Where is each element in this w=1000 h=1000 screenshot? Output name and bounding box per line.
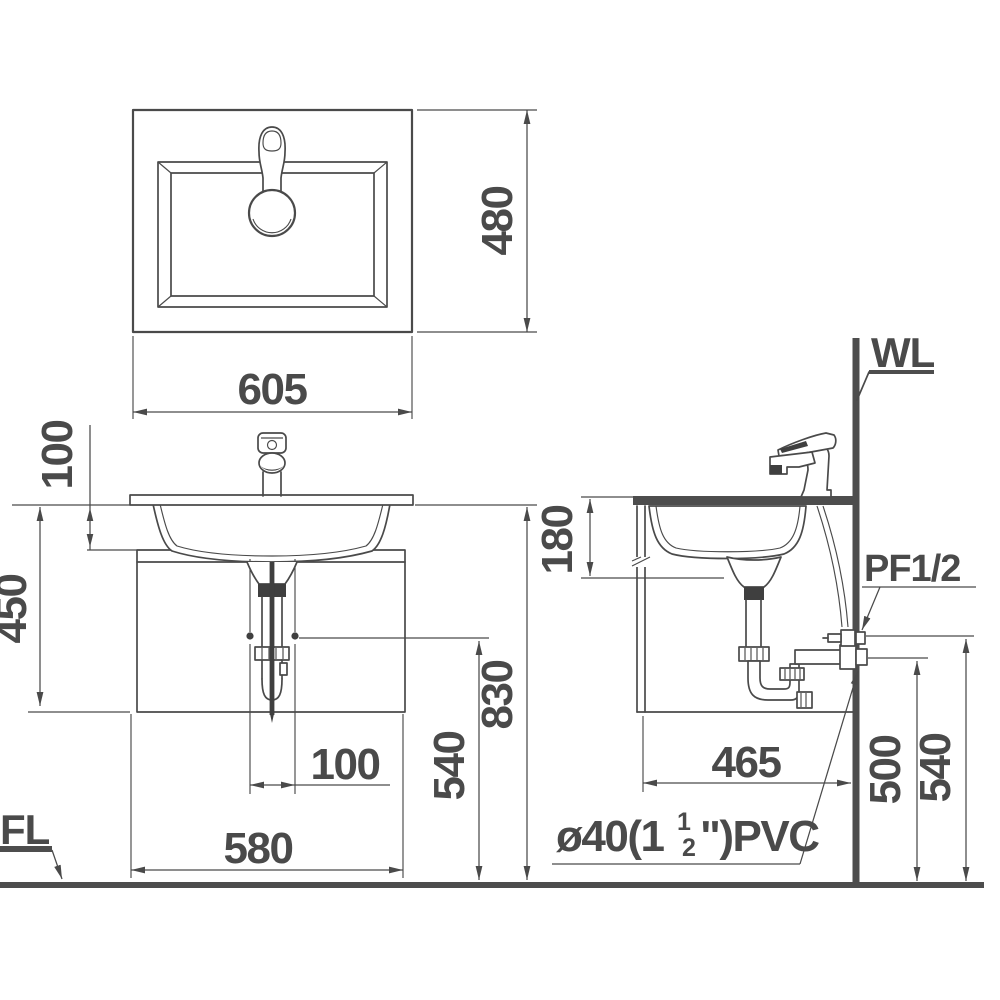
supply-hose xyxy=(817,506,848,627)
wall-supply-valve xyxy=(823,630,865,646)
wall-label-group: WL xyxy=(857,329,935,400)
drain-pipe-label-frac-denominator: 2 xyxy=(682,834,696,862)
dim-cabinet-width: 580 xyxy=(131,714,403,878)
dim-top-depth-label: 480 xyxy=(473,187,522,256)
dim-basin-depth-label: 180 xyxy=(533,506,582,575)
dim-outlet-height-label: 500 xyxy=(861,736,910,805)
dim-counter-height: 830 xyxy=(415,505,537,880)
dim-valve-height-front: 540 xyxy=(425,641,479,880)
wall-label: WL xyxy=(871,329,935,376)
dim-top-width-label: 605 xyxy=(238,365,308,414)
dim-cabinet-depth-label: 465 xyxy=(712,738,782,787)
side-drain-trap xyxy=(739,587,867,708)
drain-pipe-label-suffix: ")PVC xyxy=(700,812,819,861)
supply-fitting-label-group: PF1/2 xyxy=(862,548,976,630)
dim-cabinet-height-label: 450 xyxy=(0,575,36,644)
supply-fitting-label: PF1/2 xyxy=(864,548,960,590)
front-basin xyxy=(153,504,390,562)
floor-label-group: FL xyxy=(0,806,62,879)
drain-pipe-label-prefix: ø40(1 xyxy=(556,812,664,861)
front-counter-slab xyxy=(130,495,413,505)
dim-faucet-offset: 100 xyxy=(12,421,140,550)
drain-pipe-label-frac-numerator: 1 xyxy=(677,808,691,836)
top-view-faucet xyxy=(249,127,295,236)
top-view: 605 480 xyxy=(133,110,537,419)
vanity-installation-drawing: 605 480 xyxy=(0,0,1000,1000)
dim-faucet-offset-label: 100 xyxy=(33,421,82,490)
front-popup-rod xyxy=(270,562,275,715)
side-faucet xyxy=(770,433,836,497)
dim-cabinet-depth: 465 xyxy=(643,716,851,792)
front-view: 100 450 100 580 540 xyxy=(0,421,537,880)
dim-cabinet-width-label: 580 xyxy=(224,824,293,873)
side-view: WL xyxy=(533,329,976,885)
dim-drain-offset-label: 100 xyxy=(311,740,380,789)
dim-top-width: 605 xyxy=(133,336,412,419)
dim-valve-height-front-label: 540 xyxy=(425,732,474,801)
side-basin xyxy=(649,506,806,587)
dim-counter-height-label: 830 xyxy=(473,661,522,730)
front-faucet xyxy=(258,433,286,496)
floor-label: FL xyxy=(0,806,50,853)
dim-supply-height-label: 540 xyxy=(911,734,960,803)
dim-cabinet-height: 450 xyxy=(0,507,130,712)
dim-top-depth: 480 xyxy=(417,110,537,332)
technical-drawing-canvas: 605 480 xyxy=(0,0,1000,1000)
